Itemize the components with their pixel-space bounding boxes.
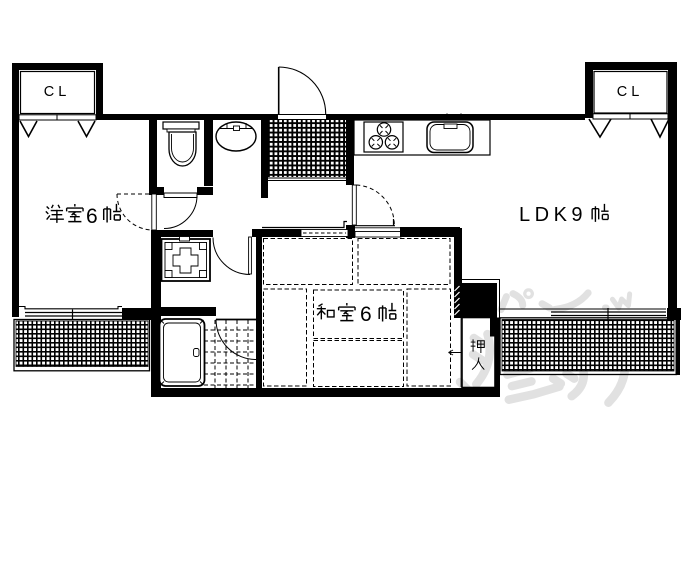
svg-text:LDK9: LDK9 — [519, 204, 587, 226]
svg-text:CL: CL — [44, 84, 71, 100]
svg-text:6: 6 — [360, 303, 372, 326]
svg-text:CL: CL — [617, 84, 644, 100]
svg-text:6: 6 — [86, 205, 98, 228]
